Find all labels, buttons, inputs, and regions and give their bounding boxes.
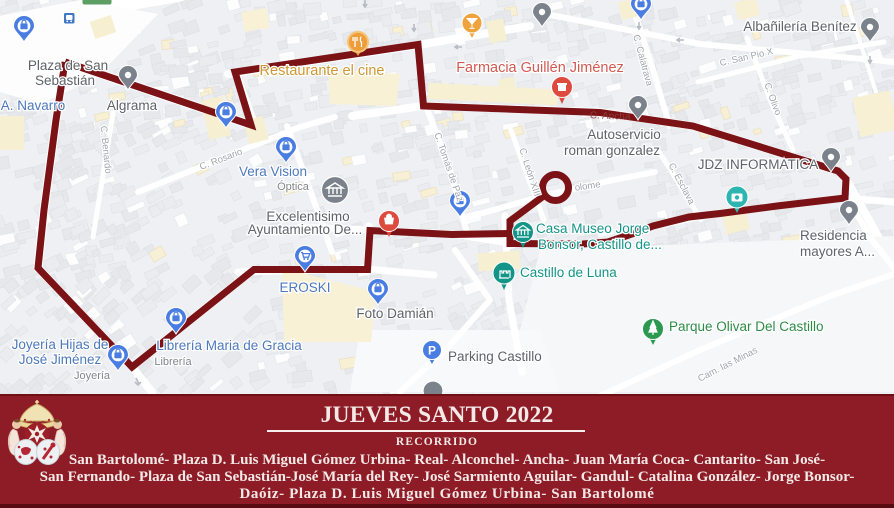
svg-text:Albañilería Benítez: Albañilería Benítez [743,19,857,34]
svg-text:Vera Vision: Vera Vision [239,164,307,179]
svg-text:Farmacia Guillén Jiménez: Farmacia Guillén Jiménez [456,60,624,76]
svg-text:Óptica: Óptica [277,180,310,193]
svg-text:JDZ INFORMATICA: JDZ INFORMATICA [698,157,819,172]
svg-text:Algrama: Algrama [107,98,158,113]
svg-text:Sebastián: Sebastián [35,73,95,88]
svg-text:Foto Damián: Foto Damián [356,306,433,321]
svg-text:roman gonzalez: roman gonzalez [564,143,660,158]
svg-text:Ayuntamiento De...: Ayuntamiento De... [248,222,363,237]
svg-text:Casa Museo Jorge: Casa Museo Jorge [536,221,649,236]
svg-text:Parque Olivar Del Castillo: Parque Olivar Del Castillo [669,319,824,334]
svg-text:mayores A...: mayores A... [800,244,875,259]
svg-text:Joyería Hijas de: Joyería Hijas de [12,337,109,352]
svg-text:Castillo de Luna: Castillo de Luna [520,265,617,280]
svg-text:Bonsor, Castillo de...: Bonsor, Castillo de... [538,237,662,252]
svg-text:EROSKI: EROSKI [279,280,330,295]
svg-text:Autoservicio: Autoservicio [587,127,661,142]
svg-text:A. Navarro: A. Navarro [1,98,66,113]
svg-text:Restaurante el cine: Restaurante el cine [260,63,385,79]
svg-text:P: P [428,344,436,358]
svg-text:C. Ancha: C. Ancha [590,110,631,122]
svg-text:Librería Maria de Gracia: Librería Maria de Gracia [156,338,302,353]
svg-text:Joyería: Joyería [74,370,111,382]
svg-text:José Jiménez: José Jiménez [19,352,102,367]
svg-text:Plaza de San: Plaza de San [28,58,108,73]
svg-text:Librería: Librería [154,356,192,368]
svg-text:Parking Castillo: Parking Castillo [448,349,542,364]
svg-text:Residencia: Residencia [800,228,867,243]
